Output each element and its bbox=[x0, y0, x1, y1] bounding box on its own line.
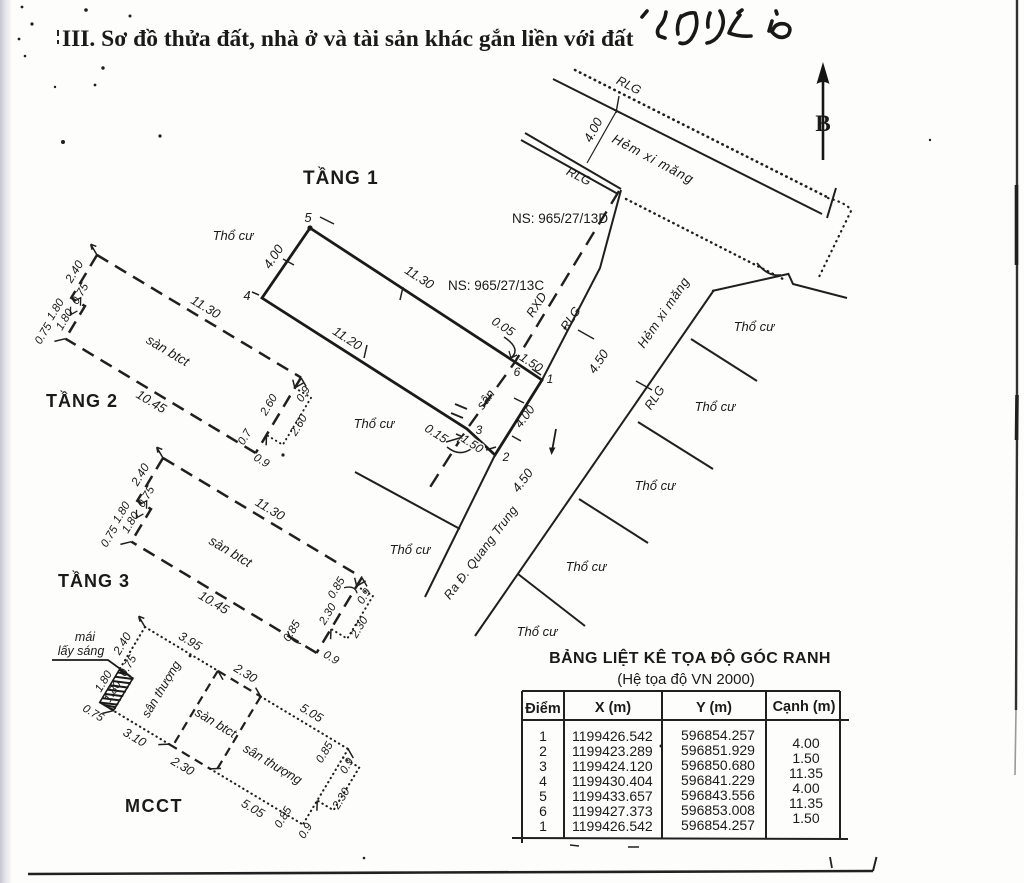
svg-text:4.50: 4.50 bbox=[509, 465, 537, 495]
svg-text:4: 4 bbox=[243, 288, 250, 303]
svg-text:0.75: 0.75 bbox=[33, 321, 55, 347]
svg-text:TẦNG 3: TẦNG 3 bbox=[58, 570, 130, 591]
svg-text:6: 6 bbox=[539, 803, 547, 819]
svg-text:sân thượng: sân thượng bbox=[241, 740, 306, 787]
svg-text:10.45: 10.45 bbox=[134, 387, 170, 417]
svg-text:4: 4 bbox=[539, 773, 547, 789]
svg-text:2.60: 2.60 bbox=[258, 392, 281, 419]
svg-text:596850.680: 596850.680 bbox=[681, 757, 755, 773]
svg-text:4.00: 4.00 bbox=[580, 115, 605, 145]
svg-text:1: 1 bbox=[539, 728, 547, 744]
svg-text:0.9: 0.9 bbox=[297, 821, 316, 841]
svg-text:BẢNG LIỆT KÊ TỌA ĐỘ GÓC RANH: BẢNG LIỆT KÊ TỌA ĐỘ GÓC RANH bbox=[549, 648, 831, 667]
svg-text:0.9: 0.9 bbox=[251, 452, 271, 471]
svg-text:0.7: 0.7 bbox=[236, 427, 255, 447]
svg-text:2.40: 2.40 bbox=[110, 630, 135, 658]
svg-text:0.85: 0.85 bbox=[281, 618, 303, 644]
svg-text:1199426.542: 1199426.542 bbox=[572, 728, 653, 744]
svg-text:0.75: 0.75 bbox=[99, 524, 121, 550]
svg-text:11.35: 11.35 bbox=[789, 795, 823, 811]
svg-text:0.9: 0.9 bbox=[338, 756, 357, 776]
svg-text:596854.257: 596854.257 bbox=[681, 817, 755, 833]
svg-text:1199424.120: 1199424.120 bbox=[572, 758, 653, 774]
svg-text:sàn btct: sàn btct bbox=[144, 332, 193, 370]
svg-text:1.50: 1.50 bbox=[792, 750, 819, 766]
svg-text:X (m): X (m) bbox=[595, 700, 631, 716]
svg-text:2.60: 2.60 bbox=[288, 412, 311, 439]
svg-text:4.00: 4.00 bbox=[512, 403, 538, 431]
svg-text:4.00: 4.00 bbox=[792, 780, 819, 796]
svg-text:Thổ cư: Thổ cư bbox=[734, 319, 776, 334]
svg-text:0.9: 0.9 bbox=[355, 586, 374, 606]
svg-text:5: 5 bbox=[539, 788, 547, 804]
svg-text:2.30: 2.30 bbox=[168, 753, 197, 778]
svg-text:sàn btct: sàn btct bbox=[206, 533, 255, 571]
svg-text:1199430.404: 1199430.404 bbox=[572, 773, 653, 789]
svg-text:0.75: 0.75 bbox=[80, 703, 106, 725]
svg-text:Cạnh (m): Cạnh (m) bbox=[773, 699, 836, 715]
svg-text:0.85: 0.85 bbox=[314, 739, 336, 765]
svg-text:3.95: 3.95 bbox=[176, 629, 204, 654]
svg-text:2.40: 2.40 bbox=[128, 461, 153, 489]
svg-text:6: 6 bbox=[514, 365, 521, 379]
svg-text:TẦNG 1: TẦNG 1 bbox=[303, 167, 379, 189]
svg-text:2.30: 2.30 bbox=[348, 614, 371, 641]
svg-text:2: 2 bbox=[539, 743, 547, 759]
svg-text:11.30: 11.30 bbox=[253, 494, 288, 524]
svg-text:596841.229: 596841.229 bbox=[681, 772, 755, 788]
svg-text:B: B bbox=[815, 111, 830, 136]
svg-text:1199423.289: 1199423.289 bbox=[572, 743, 653, 759]
svg-text:1: 1 bbox=[539, 818, 547, 834]
svg-text:(Hệ tọa độ VN 2000): (Hệ tọa độ VN 2000) bbox=[617, 671, 755, 688]
svg-text:596851.929: 596851.929 bbox=[681, 742, 755, 758]
svg-text:1199426.542: 1199426.542 bbox=[572, 818, 653, 834]
svg-text:Thổ cư: Thổ cư bbox=[517, 624, 559, 639]
svg-text:1: 1 bbox=[547, 372, 554, 386]
svg-text:Thổ cư: Thổ cư bbox=[354, 416, 396, 431]
svg-text:0.9: 0.9 bbox=[321, 649, 341, 668]
svg-text:sân thượng: sân thượng bbox=[139, 658, 184, 720]
svg-text:Hẻm xi măng: Hẻm xi măng bbox=[610, 131, 697, 187]
svg-text:11.30: 11.30 bbox=[402, 262, 437, 292]
svg-text:5.05: 5.05 bbox=[239, 796, 267, 821]
svg-text:RLG: RLG bbox=[614, 73, 644, 97]
svg-text:NS: 965/27/13D: NS: 965/27/13D bbox=[512, 211, 608, 226]
svg-text:III. Sơ đồ thửa đất, nhà ở và: III. Sơ đồ thửa đất, nhà ở và tài sản kh… bbox=[62, 26, 634, 52]
svg-text:11.30: 11.30 bbox=[188, 292, 223, 322]
svg-text:11.20: 11.20 bbox=[330, 323, 365, 353]
svg-text:3: 3 bbox=[539, 758, 547, 774]
svg-text:RLG: RLG bbox=[564, 164, 594, 188]
svg-text:11.35: 11.35 bbox=[789, 765, 823, 781]
svg-text:Điểm: Điểm bbox=[525, 701, 560, 717]
svg-text:596854.257: 596854.257 bbox=[681, 727, 755, 743]
svg-text:1.50: 1.50 bbox=[792, 810, 819, 826]
svg-text:MCCT: MCCT bbox=[125, 796, 183, 816]
svg-text:sàn btct: sàn btct bbox=[192, 705, 240, 742]
svg-text:0.15: 0.15 bbox=[422, 421, 450, 446]
svg-text:NS: 965/27/13C: NS: 965/27/13C bbox=[448, 278, 544, 293]
svg-text:Thổ cư: Thổ cư bbox=[566, 559, 608, 574]
svg-text:5: 5 bbox=[304, 210, 312, 225]
svg-text:2: 2 bbox=[502, 450, 510, 464]
svg-text:Thổ cư: Thổ cư bbox=[213, 228, 255, 243]
svg-text:3: 3 bbox=[476, 423, 483, 437]
svg-text:mái: mái bbox=[75, 630, 96, 644]
svg-text:Hẻm xi măng: Hẻm xi măng bbox=[634, 274, 692, 351]
svg-text:TẦNG 2: TẦNG 2 bbox=[46, 390, 118, 411]
svg-text:Thổ cư: Thổ cư bbox=[635, 478, 677, 493]
svg-text:596843.556: 596843.556 bbox=[681, 787, 755, 803]
svg-text:sân: sân bbox=[473, 386, 498, 412]
svg-text:Thổ cư: Thổ cư bbox=[390, 542, 432, 557]
svg-text:10.45: 10.45 bbox=[196, 588, 232, 618]
svg-text:RXD: RXD bbox=[524, 290, 550, 320]
svg-text:1199427.373: 1199427.373 bbox=[572, 803, 653, 819]
svg-text:1199433.657: 1199433.657 bbox=[572, 788, 653, 804]
svg-text:0.05: 0.05 bbox=[489, 314, 517, 339]
svg-text:4.00: 4.00 bbox=[792, 735, 819, 751]
svg-text:Y (m): Y (m) bbox=[696, 700, 732, 716]
svg-text:596853.008: 596853.008 bbox=[681, 802, 755, 818]
svg-text:2.40: 2.40 bbox=[62, 258, 87, 286]
svg-text:Thổ cư: Thổ cư bbox=[695, 399, 737, 414]
svg-text:lấy sáng: lấy sáng bbox=[58, 644, 105, 658]
svg-text:4.50: 4.50 bbox=[585, 346, 612, 376]
svg-text:2.30: 2.30 bbox=[317, 601, 340, 628]
